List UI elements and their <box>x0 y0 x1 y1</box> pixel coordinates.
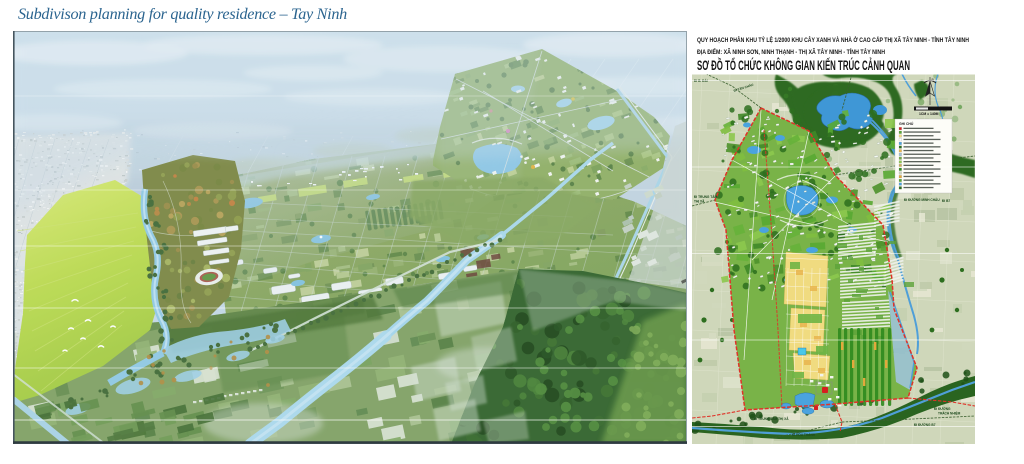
svg-text:THỊ XÃ: THỊ XÃ <box>694 199 705 204</box>
svg-text:1CM = 140M: 1CM = 140M <box>919 112 939 116</box>
svg-text:ĐI ĐƯỜNG MINH CHÂU: ĐI ĐƯỜNG MINH CHÂU <box>904 197 940 202</box>
svg-text:SƠ ĐỒ TỔ CHỨC KHÔNG GIAN KIẾN: SƠ ĐỒ TỔ CHỨC KHÔNG GIAN KIẾN TRÚC CẢNH … <box>697 58 910 73</box>
svg-text:QUY HOẠCH PHÂN KHU TỶ LỆ 1/200: QUY HOẠCH PHÂN KHU TỶ LỆ 1/2000 KHU CÂY … <box>697 36 969 44</box>
svg-text:ĐI ĐƯỜNG: ĐI ĐƯỜNG <box>934 406 951 411</box>
svg-text:ĐI TRUNG TÂM: ĐI TRUNG TÂM <box>694 194 718 199</box>
svg-text:GHI CHÚ: GHI CHÚ <box>899 121 914 126</box>
svg-text:ĐỊA ĐIỂM: XÃ NINH SƠN, NINH TH: ĐỊA ĐIỂM: XÃ NINH SƠN, NINH THẠNH - THỊ … <box>697 49 885 56</box>
svg-text:TRÁCH NHIỆM: TRÁCH NHIỆM <box>938 411 961 416</box>
svg-text:ĐI B7: ĐI B7 <box>942 199 950 203</box>
svg-text:ĐI TRUNG TÂM THỊ XÃ: ĐI TRUNG TÂM THỊ XÃ <box>754 416 789 421</box>
svg-text:ĐI HÒA THÀNH: ĐI HÒA THÀNH <box>792 432 816 437</box>
